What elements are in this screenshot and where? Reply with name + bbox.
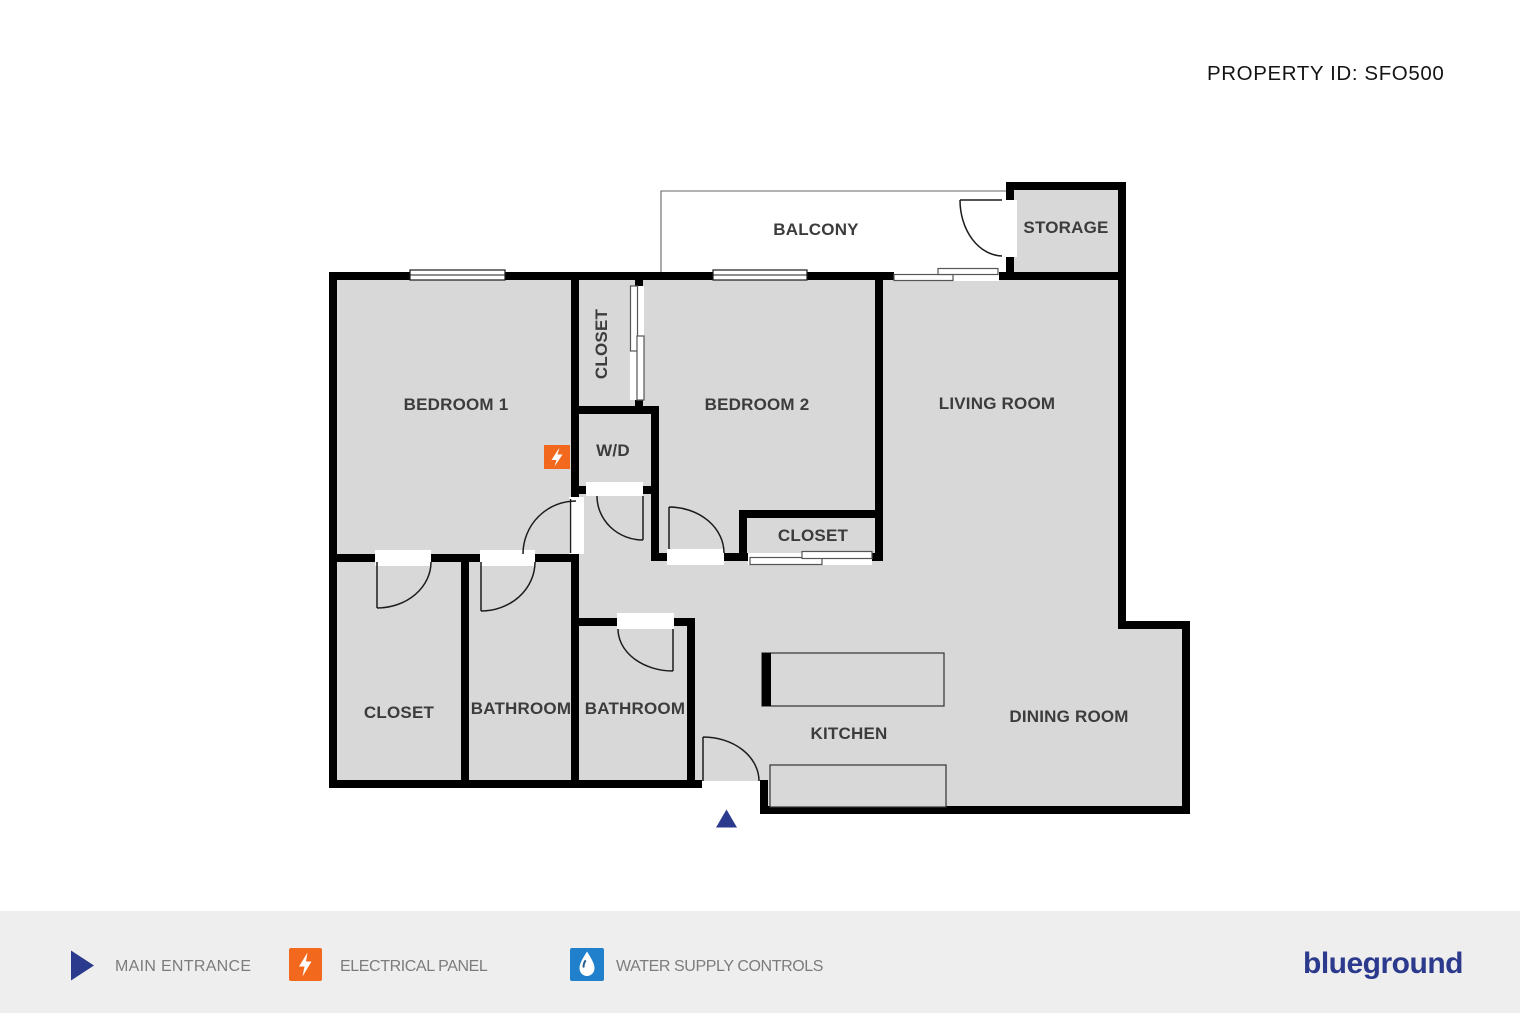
svg-text:LIVING ROOM: LIVING ROOM — [939, 394, 1055, 413]
svg-text:BATHROOM: BATHROOM — [471, 699, 571, 718]
svg-text:STORAGE: STORAGE — [1023, 218, 1108, 237]
svg-text:blueground: blueground — [1303, 947, 1463, 980]
svg-text:MAIN ENTRANCE: MAIN ENTRANCE — [115, 958, 251, 975]
svg-text:DINING ROOM: DINING ROOM — [1009, 707, 1128, 726]
svg-text:CLOSET: CLOSET — [778, 526, 849, 545]
svg-text:ELECTRICAL PANEL: ELECTRICAL PANEL — [340, 958, 488, 975]
svg-text:BEDROOM 2: BEDROOM 2 — [705, 395, 810, 414]
svg-text:BEDROOM 1: BEDROOM 1 — [404, 395, 509, 414]
svg-text:CLOSET: CLOSET — [592, 309, 611, 380]
svg-text:KITCHEN: KITCHEN — [811, 724, 888, 743]
svg-text:W/D: W/D — [596, 441, 630, 460]
svg-text:BALCONY: BALCONY — [773, 220, 859, 239]
svg-text:WATER SUPPLY CONTROLS: WATER SUPPLY CONTROLS — [616, 958, 823, 975]
svg-text:BATHROOM: BATHROOM — [585, 699, 685, 718]
svg-text:CLOSET: CLOSET — [364, 703, 435, 722]
svg-text:PROPERTY ID: SFO500: PROPERTY ID: SFO500 — [1207, 62, 1444, 85]
